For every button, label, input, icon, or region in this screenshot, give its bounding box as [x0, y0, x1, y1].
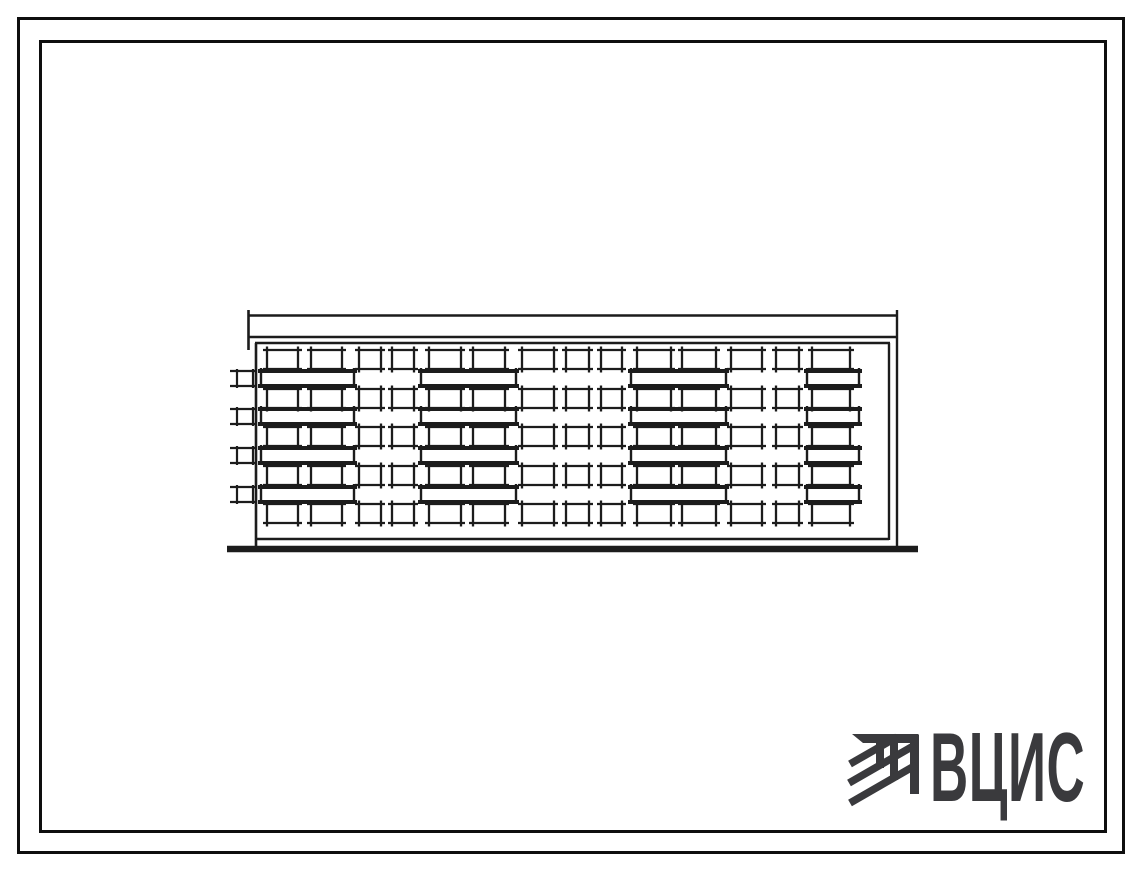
side-balconies [230, 369, 256, 504]
facade-windows [263, 347, 854, 527]
vcis-logo-icon [849, 734, 919, 803]
publisher-logo: ВЦИС [828, 698, 1100, 823]
balcony-rails [258, 368, 862, 504]
publisher-logo-text: ВЦИС [930, 713, 1085, 823]
logo-icon-hatch-stripes [849, 737, 916, 803]
facade-wall [256, 343, 889, 546]
